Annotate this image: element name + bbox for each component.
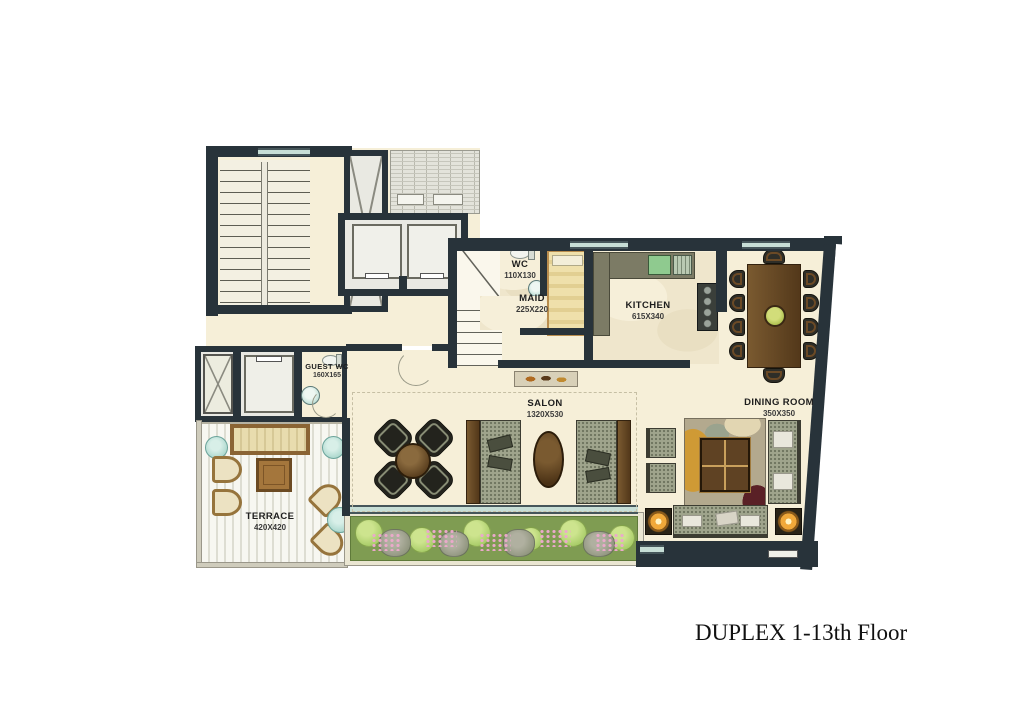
salon-sofa — [576, 420, 617, 504]
north-window — [742, 241, 790, 249]
planter-flowers — [425, 529, 457, 547]
table-inlay-line — [724, 440, 726, 490]
elevator-car — [352, 224, 402, 279]
entrance-door-arc — [398, 350, 434, 386]
sofa-pillow — [682, 515, 702, 527]
room-name: TERRACE — [246, 512, 295, 523]
salon-round-table — [395, 443, 431, 479]
elevator-divider-wall — [399, 276, 407, 296]
maid-label: MAID 225X220 — [516, 294, 548, 314]
room-name: WC — [504, 260, 536, 271]
room-name: MAID — [516, 294, 548, 305]
living-sofa-bottom — [673, 505, 768, 538]
hall-wall — [346, 344, 402, 351]
planter-flowers — [371, 533, 401, 551]
room-dims: 1320X530 — [527, 410, 563, 419]
room-dims: 160X165 — [305, 372, 349, 380]
wall-niche — [768, 550, 798, 558]
dining-chair — [729, 342, 745, 360]
elevator-door — [420, 273, 444, 279]
planter-bed — [350, 516, 638, 561]
core-left-wall — [206, 146, 218, 316]
terrace-label: TERRACE 420X420 — [246, 512, 295, 532]
sofa-pillow — [773, 431, 793, 448]
sofa-side-panel — [617, 420, 631, 504]
terrace-table — [256, 458, 292, 492]
sofa-side-panel — [466, 420, 480, 504]
dining-centerpiece — [764, 305, 786, 327]
salon-sofa — [480, 420, 521, 504]
lamp-table — [775, 508, 802, 535]
kitchen-sink-icon — [648, 255, 671, 275]
dining-label: DINING ROOM 350X350 — [744, 398, 814, 418]
planter-flowers — [595, 533, 625, 551]
hall-wall — [432, 344, 454, 351]
stair-bottom-wall — [206, 305, 352, 314]
room-name: GUEST WC — [305, 363, 349, 372]
sofa-pillow — [487, 434, 513, 452]
planter-flowers — [479, 533, 511, 551]
plan-caption: DUPLEX 1-13th Floor — [695, 620, 907, 646]
terrace-bottom-parapet — [196, 562, 348, 568]
elevator-car-single — [244, 355, 294, 413]
dining-chair — [729, 270, 745, 288]
staircase-stringer — [261, 162, 268, 306]
armchair — [646, 428, 676, 458]
sofa-pillow — [585, 449, 611, 467]
square-coffee-table — [700, 438, 750, 492]
floor-plan-canvas: WC 110X130 MAID 225X220 KITCHEN 615X340 … — [0, 0, 1024, 724]
vent-panel — [433, 194, 463, 205]
hall-rug — [514, 371, 578, 387]
sofa-pillow — [715, 511, 739, 527]
wc-label: WC 110X130 — [504, 260, 536, 280]
room-dims: 615X340 — [625, 312, 670, 321]
room-dims: 225X220 — [516, 305, 548, 314]
terrace-chair — [212, 456, 242, 483]
salon-label: SALON 1320X530 — [527, 399, 563, 419]
maid-south-wall — [520, 328, 590, 335]
kitchen-label: KITCHEN 615X340 — [625, 301, 670, 321]
sofa-pillow — [487, 455, 513, 471]
room-dims: 110X130 — [504, 271, 536, 280]
guest-wc-label: GUEST WC 160X165 — [305, 363, 349, 380]
armchair — [646, 463, 676, 493]
oval-coffee-table — [533, 431, 564, 488]
kitchen-counter-left — [593, 252, 610, 336]
lamp-table — [645, 508, 672, 535]
bed-pillow — [552, 255, 583, 266]
kitchen-drainer — [673, 255, 692, 275]
room-name: KITCHEN — [625, 301, 670, 312]
stove-icon — [697, 283, 718, 331]
sofa-pillow — [740, 515, 760, 527]
vent-panel — [397, 194, 424, 205]
living-south-window — [640, 545, 664, 554]
living-sofa-right — [768, 420, 801, 504]
planter-flowers — [539, 529, 571, 547]
terrace-chair — [212, 489, 242, 516]
terrace-table-inlay — [263, 465, 285, 485]
room-name: SALON — [527, 399, 563, 410]
elevator-door — [365, 273, 389, 279]
sofa-pillow — [585, 467, 611, 483]
maid-kitchen-wall — [584, 240, 593, 368]
dining-chair — [763, 249, 785, 264]
duct-shaft-small — [203, 354, 233, 414]
dining-chair — [729, 318, 745, 336]
shaft-x-icon — [205, 356, 231, 412]
core-top-window — [258, 148, 310, 156]
kitchen-south-wall — [498, 360, 690, 368]
room-dims: 350X350 — [744, 409, 814, 418]
dining-table — [747, 264, 801, 368]
maid-bed — [547, 250, 588, 336]
dining-chair — [763, 368, 785, 383]
door-swing-arc — [312, 390, 340, 418]
sofa-pillow — [773, 473, 793, 490]
dining-chair — [729, 294, 745, 312]
terrace-bench — [230, 424, 310, 455]
room-dims: 420X420 — [246, 523, 295, 532]
north-window — [570, 241, 628, 249]
room-name: DINING ROOM — [744, 398, 814, 409]
service-wall — [294, 348, 302, 418]
salon-west-wall — [342, 418, 350, 516]
service-wall — [233, 348, 241, 418]
elevator-door — [256, 356, 282, 362]
terrace-left-parapet — [196, 420, 202, 568]
